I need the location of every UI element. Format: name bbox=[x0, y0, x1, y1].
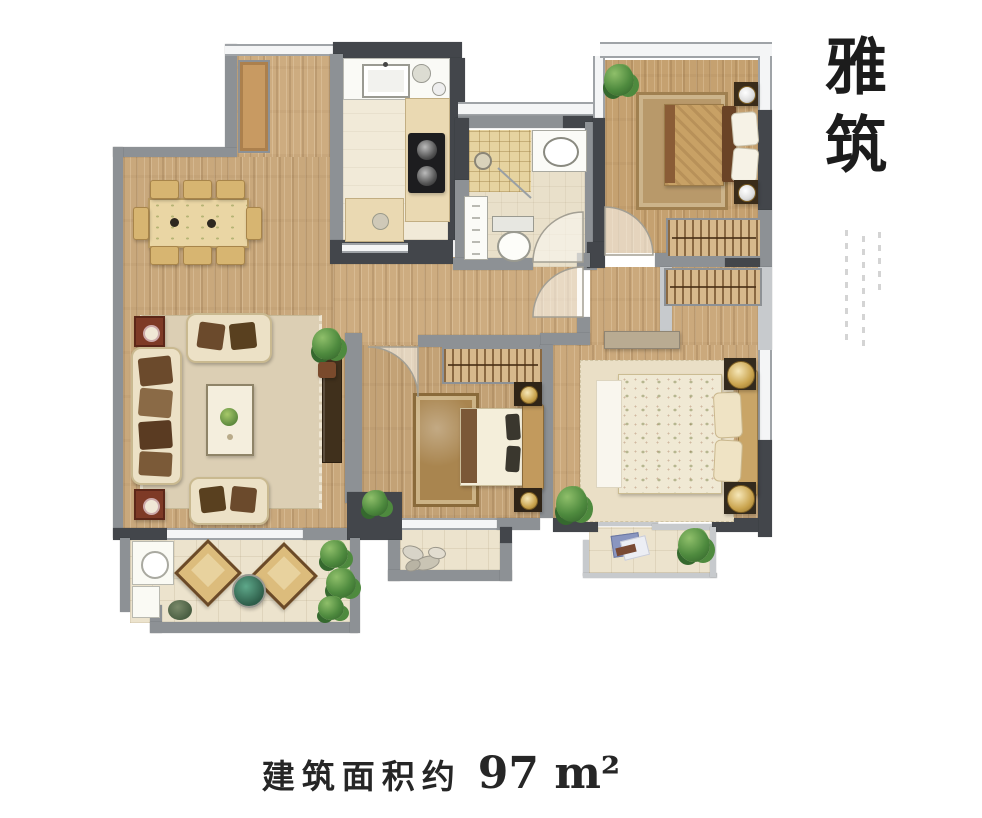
master-tv-console bbox=[604, 331, 680, 349]
bedroom2-balcony-window bbox=[402, 518, 497, 530]
burner bbox=[417, 140, 437, 160]
bedroom2-headboard bbox=[522, 404, 544, 490]
lamp bbox=[520, 386, 538, 404]
bedroom3-nightstand bbox=[734, 180, 758, 204]
bedroom3-bed-duvet bbox=[664, 104, 724, 186]
right-wall-window-master bbox=[758, 350, 772, 440]
bathroom-vanity bbox=[532, 130, 587, 172]
bedroom2-top-wall bbox=[418, 335, 540, 347]
right-wall-dark-1 bbox=[758, 110, 772, 210]
bed-pillow bbox=[731, 147, 760, 183]
laundry-basin bbox=[141, 551, 169, 579]
kitchen-cup bbox=[432, 82, 446, 96]
master-closet bbox=[664, 268, 762, 306]
balcony-round-table bbox=[232, 574, 266, 608]
bedroom3-plant bbox=[604, 64, 634, 96]
balcony-plant-dark bbox=[168, 600, 192, 620]
kitchen-lower-cabinet bbox=[345, 198, 404, 242]
mid-balcony-right-wall bbox=[500, 542, 512, 581]
left-outer-wall bbox=[113, 147, 123, 538]
kitchen-left-wall bbox=[330, 54, 343, 240]
wardrobe-rail bbox=[670, 286, 757, 288]
bed-pillow bbox=[713, 391, 743, 438]
bed-throw bbox=[665, 105, 675, 183]
page-title: 雅筑 bbox=[810, 34, 890, 234]
laundry-unit bbox=[132, 541, 174, 585]
balcony-plant bbox=[320, 540, 348, 568]
lamp bbox=[738, 184, 756, 202]
table-decor bbox=[227, 434, 233, 440]
chair-cushion bbox=[191, 553, 225, 587]
bed-pillow bbox=[505, 414, 521, 441]
sofa-cushion bbox=[229, 322, 258, 351]
bed-pillow bbox=[713, 439, 743, 482]
dining-top-wall bbox=[113, 147, 237, 157]
right-balcony-right-rail bbox=[710, 527, 716, 577]
lamp bbox=[727, 485, 755, 513]
right-wall-dark-2 bbox=[758, 440, 772, 537]
balcony-plant bbox=[326, 568, 356, 598]
bedroom2-plant bbox=[362, 490, 388, 516]
master-bedroom2-divider-top bbox=[540, 333, 590, 345]
living-bedroom2-wall bbox=[345, 333, 362, 503]
bed-throw bbox=[461, 409, 477, 483]
corridor-floor bbox=[333, 257, 577, 345]
dining-table bbox=[148, 198, 249, 248]
left-balcony-left-wall bbox=[120, 538, 130, 612]
loveseat-bottom bbox=[189, 477, 269, 525]
chair-cushion bbox=[267, 556, 301, 590]
balcony-shelf bbox=[132, 586, 160, 618]
lamp bbox=[727, 361, 755, 389]
bedroom2-nightstand bbox=[514, 382, 542, 406]
master-nightstand bbox=[724, 358, 756, 390]
mid-balcony-right-cap bbox=[500, 527, 512, 543]
master-sliding-door-b bbox=[652, 524, 712, 530]
kitchen-sliding-door bbox=[342, 243, 408, 253]
sofa-cushion bbox=[230, 486, 257, 513]
dining-chair bbox=[150, 246, 179, 265]
bed-pillow bbox=[731, 111, 760, 147]
bedroom3-left-window bbox=[593, 56, 605, 118]
toilet bbox=[492, 216, 534, 232]
bed-pillow bbox=[505, 446, 521, 473]
bowl bbox=[372, 213, 389, 230]
lamp bbox=[738, 86, 756, 104]
bathroom-top-window bbox=[458, 102, 597, 116]
shower-head bbox=[474, 152, 492, 170]
master-bed-fold bbox=[596, 380, 622, 488]
washer-unit bbox=[464, 196, 488, 260]
living-balcony-window bbox=[167, 528, 303, 540]
bathroom-left-wall-upper bbox=[455, 118, 469, 180]
toilet-bowl bbox=[497, 231, 531, 262]
vertical-tagline-faint bbox=[845, 228, 848, 340]
sofa-long bbox=[131, 347, 182, 485]
washbasin bbox=[543, 137, 579, 167]
shoe-cabinet bbox=[238, 60, 270, 153]
lamp bbox=[520, 492, 538, 510]
wardrobe-rail bbox=[448, 364, 538, 366]
floor-plan-page: 雅筑 建筑面积约 97 m² bbox=[0, 0, 982, 818]
sofa-cushion bbox=[138, 388, 173, 419]
entry-top-wall bbox=[225, 44, 333, 56]
mid-balcony-bottom-wall bbox=[388, 570, 512, 581]
sofa-cushion bbox=[138, 355, 174, 386]
faucet bbox=[383, 62, 388, 67]
sofa-cushion bbox=[138, 451, 172, 477]
dining-chair bbox=[246, 207, 262, 240]
wardrobe-rail bbox=[672, 237, 757, 239]
area-caption-label: 建筑面积约 bbox=[262, 750, 462, 798]
sofa-cushion bbox=[138, 420, 173, 450]
hall-master-wall-top bbox=[577, 253, 590, 267]
dining-chair bbox=[216, 246, 245, 265]
plate bbox=[207, 219, 216, 228]
master-bed-duvet bbox=[618, 374, 722, 494]
side-table-top bbox=[143, 325, 160, 342]
vertical-tagline-faint bbox=[878, 228, 881, 290]
right-balcony-plant bbox=[678, 528, 710, 562]
coffee-table bbox=[206, 384, 254, 456]
sofa-cushion bbox=[196, 321, 225, 350]
loveseat-top bbox=[186, 313, 272, 363]
dining-chair bbox=[150, 180, 179, 199]
kitchen-mixer bbox=[412, 64, 431, 83]
dining-chair bbox=[133, 207, 149, 240]
dining-chair bbox=[183, 246, 212, 265]
master-nightstand bbox=[724, 482, 756, 514]
right-balcony-bottom-rail bbox=[583, 573, 717, 578]
plate bbox=[170, 218, 179, 227]
left-balcony-bottom-wall bbox=[150, 622, 358, 633]
side-table-top bbox=[143, 498, 160, 515]
living-bottom-wall bbox=[303, 528, 347, 540]
bedroom3-nightstand bbox=[734, 82, 758, 106]
table-plant bbox=[220, 408, 238, 426]
master-plant bbox=[556, 486, 588, 522]
cooktop bbox=[408, 133, 445, 193]
balcony-plant bbox=[318, 596, 344, 620]
right-balcony-left-rail bbox=[583, 540, 589, 576]
hall-plant-pot bbox=[318, 362, 336, 378]
bedroom3-left-wall bbox=[593, 118, 605, 255]
dining-chair bbox=[183, 180, 212, 199]
bedroom3-wardrobe bbox=[666, 218, 762, 258]
sofa-cushion bbox=[199, 486, 227, 514]
dining-chair bbox=[216, 180, 245, 199]
side-table bbox=[134, 316, 165, 347]
bedroom2-nightstand bbox=[514, 488, 542, 512]
kitchen-top-wall bbox=[333, 42, 462, 58]
hall-plant bbox=[312, 328, 342, 360]
area-caption: 建筑面积约 97 m² bbox=[0, 748, 882, 799]
vertical-tagline-faint bbox=[862, 232, 865, 346]
side-table bbox=[134, 489, 165, 520]
kitchen-sink bbox=[362, 64, 410, 98]
entry-left-wall bbox=[225, 44, 237, 147]
bedroom2-wardrobe bbox=[442, 347, 544, 384]
burner bbox=[417, 166, 437, 186]
bedroom3-top-window bbox=[600, 42, 772, 58]
right-wall-window-top bbox=[758, 56, 772, 110]
area-caption-value: 97 m² bbox=[478, 748, 620, 799]
